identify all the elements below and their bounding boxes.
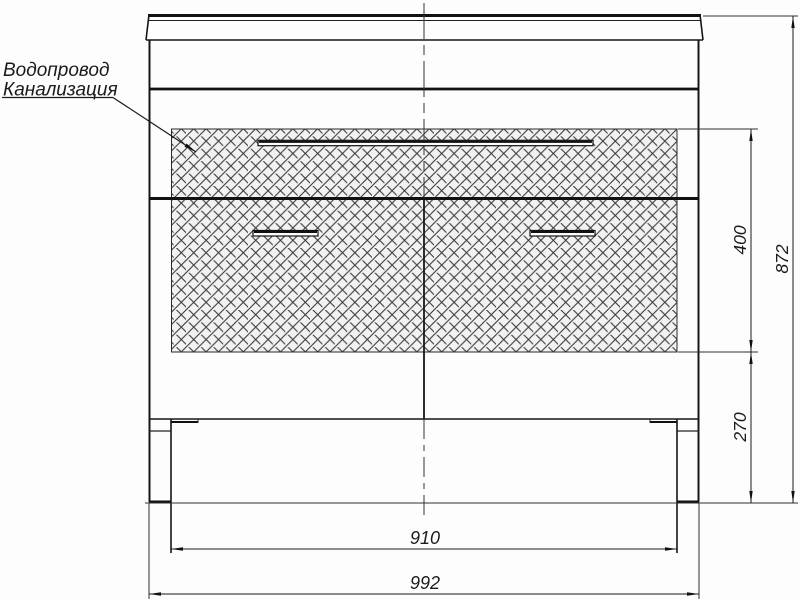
plumbing-callout: Водопровод Канализация: [2, 60, 196, 152]
dimension-plinth-height: 270: [730, 352, 753, 503]
door-handle-right: [530, 231, 595, 237]
dimension-label-270: 270: [730, 412, 750, 442]
vanity-cabinet-drawing: 400 270 872 910 992 Водопровод Канализац…: [0, 0, 800, 600]
technical-drawing-page: 400 270 872 910 992 Водопровод Канализац…: [0, 0, 800, 600]
callout-leader-line: [113, 98, 196, 153]
dimension-overall-width: 992: [149, 573, 699, 596]
dimension-label-910: 910: [410, 528, 440, 548]
dimension-label-992: 992: [410, 573, 440, 593]
dimension-label-400: 400: [730, 225, 750, 254]
dimension-overall-height: 872: [772, 16, 795, 503]
dimension-inner-width: 910: [171, 528, 677, 551]
dimension-label-872: 872: [772, 244, 792, 273]
callout-water-supply: Водопровод: [3, 60, 109, 81]
door-handle-left: [253, 231, 318, 237]
drawer-handle: [258, 140, 593, 145]
dimension-zone-height: 400: [730, 129, 753, 352]
